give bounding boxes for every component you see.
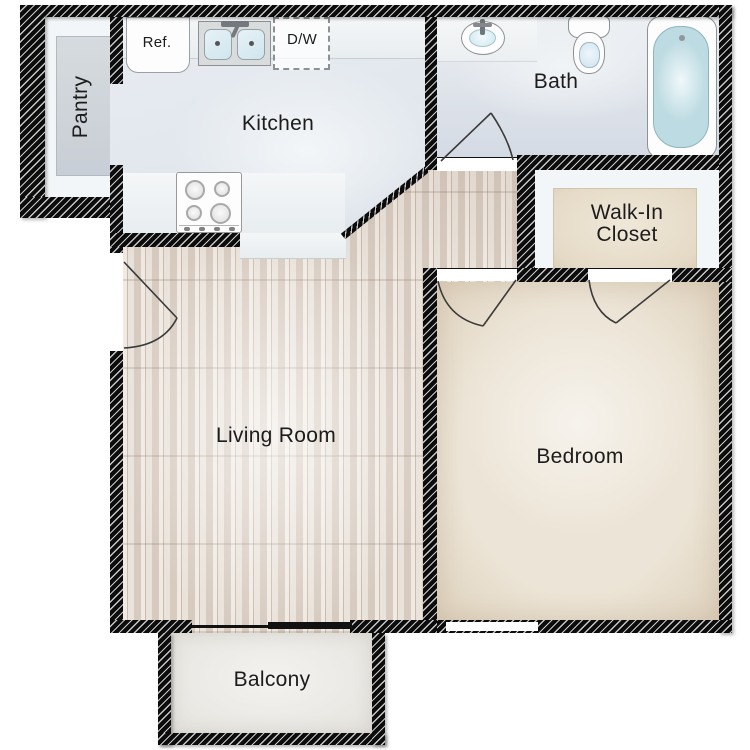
toilet-icon	[568, 16, 610, 78]
bathtub-icon	[647, 16, 717, 159]
wall-right	[719, 5, 732, 633]
bath-faucet-icon	[480, 19, 485, 35]
bath-sink-icon	[461, 21, 505, 55]
wall-pantry-bottom	[20, 197, 123, 218]
pantry-label: Pantry	[70, 76, 92, 139]
living-room-label: Living Room	[216, 425, 336, 447]
kitchen-sink-icon	[198, 21, 271, 66]
wall-bath-bottom	[517, 155, 719, 170]
wall-livingroom-bottom-left	[110, 620, 192, 633]
wall-top	[20, 5, 732, 17]
wall-livingroom-bottom-right	[350, 620, 437, 633]
bedroom-label: Bedroom	[536, 446, 623, 468]
wall-bedroom-top-c	[672, 268, 732, 282]
wall-bath-left	[425, 17, 437, 170]
wall-closet-left	[517, 155, 535, 282]
floor-plan: Ref. D/W	[0, 0, 750, 750]
wall-bedroom-left	[423, 268, 437, 633]
wall-balcony-bottom	[158, 733, 385, 745]
wall-pantry-stub-top	[110, 17, 123, 84]
entry-door-threshold	[110, 253, 123, 351]
bedroom-window	[446, 622, 538, 631]
bath-door-threshold	[437, 157, 517, 171]
bath-label: Bath	[534, 71, 578, 93]
balcony-label: Balcony	[234, 669, 311, 691]
bedroom-door-threshold	[437, 268, 517, 281]
wall-balcony-right	[372, 633, 385, 745]
wall-left-outer	[20, 5, 45, 218]
wall-balcony-left	[158, 633, 171, 745]
walk-in-closet-label: Walk-In Closet	[591, 202, 664, 246]
closet-door-threshold	[588, 268, 672, 281]
wall-kitchen-bottom	[110, 233, 240, 247]
kitchen-label: Kitchen	[242, 113, 314, 135]
kitchen-peninsula-counter	[240, 233, 346, 259]
stove-icon	[176, 172, 242, 233]
wall-left-lower	[110, 351, 123, 620]
dishwasher-label: D/W	[287, 29, 317, 51]
balcony-sliding-door-panel-2	[268, 622, 352, 629]
wall-bedroom-top-b	[517, 268, 588, 282]
refrigerator-label: Ref.	[143, 32, 172, 54]
balcony-sliding-door-panel-1	[192, 625, 274, 628]
